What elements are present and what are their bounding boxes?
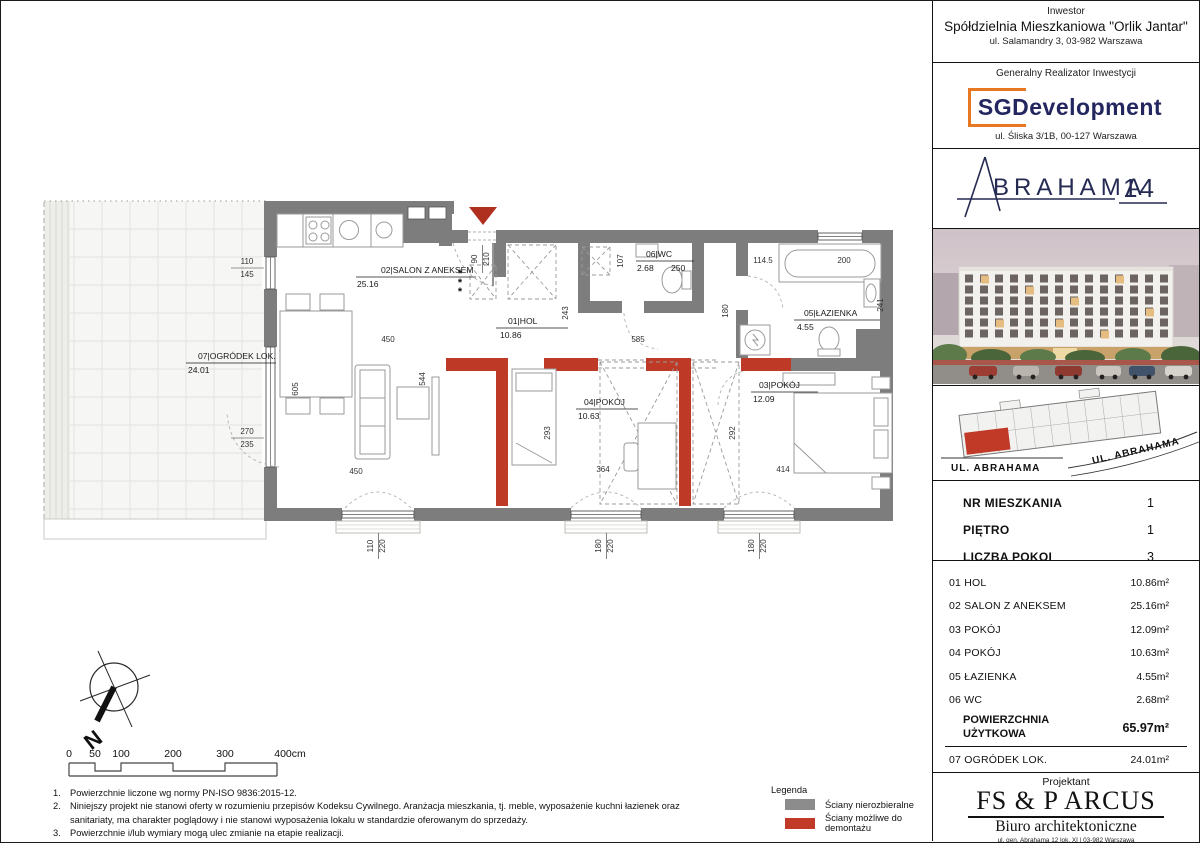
svg-text:110: 110 (366, 539, 375, 552)
label-hol: 01|HOL (508, 316, 538, 326)
svg-text:0: 0 (66, 748, 72, 760)
svg-text:25.16: 25.16 (357, 279, 379, 289)
siteplan-section: UL. ABRAHAMA UL. ABRAHAMA (933, 386, 1199, 481)
investor-section: Inwestor Spółdzielnia Mieszkaniowa "Orli… (933, 1, 1199, 63)
svg-text:24.01: 24.01 (188, 365, 210, 375)
svg-text:364: 364 (596, 465, 610, 474)
svg-text:235: 235 (240, 440, 254, 449)
developer-section: Generalny Realizator Inwestycji SGDevelo… (933, 63, 1199, 149)
investor-address: ul. Salamandry 3, 03-982 Warszawa (933, 36, 1199, 47)
label-salon: 02|SALON Z ANEKSEM (381, 265, 474, 275)
apartment-number-row: NR MIESZKANIA 1 (933, 489, 1199, 516)
svg-text:*: * (458, 286, 463, 298)
svg-text:180: 180 (594, 539, 603, 553)
table-row: 03 POKÓJ12.09m² (933, 618, 1199, 642)
svg-text:450: 450 (349, 467, 363, 476)
svg-text:110: 110 (241, 257, 254, 266)
svg-text:450: 450 (381, 335, 395, 344)
svg-text:50: 50 (89, 748, 101, 760)
room-areas-section: 01 HOL10.86m² 02 SALON Z ANEKSEM25.16m² … (933, 561, 1199, 773)
legend-item-solid-walls: Ściany nierozbieralne (785, 799, 931, 810)
investor-label: Inwestor (933, 1, 1199, 17)
svg-text:585: 585 (631, 335, 645, 344)
red-wall-swatch (785, 818, 815, 829)
svg-text:605: 605 (291, 382, 300, 396)
svg-text:200: 200 (837, 256, 851, 265)
investor-name: Spółdzielnia Mieszkaniowa "Orlik Jantar" (933, 19, 1199, 34)
svg-text:414: 414 (776, 465, 790, 474)
svg-text:107: 107 (616, 254, 625, 268)
svg-text:220: 220 (378, 539, 387, 553)
total-area-row: POWIERZCHNIAUŻYTKOWA 65.97m² (933, 712, 1199, 746)
table-row: 05 ŁAZIENKA4.55m² (933, 665, 1199, 689)
table-divider (945, 746, 1187, 747)
svg-text:4.55: 4.55 (797, 322, 814, 332)
svg-text:180: 180 (721, 304, 730, 318)
gray-wall-swatch (785, 799, 815, 810)
building-photo-section (933, 229, 1199, 386)
svg-text:544: 544 (418, 372, 427, 386)
building-render (933, 229, 1199, 384)
footnotes: 1.Powierzchnie liczone wg normy PN-ISO 9… (53, 787, 725, 843)
svg-text:210: 210 (482, 252, 491, 266)
apartment-info-section: NR MIESZKANIA 1 PIĘTRO 1 LICZBA POKOI 3 (933, 481, 1199, 561)
sgdevelopment-logo: SGDevelopment (968, 88, 1164, 127)
table-row: 02 SALON Z ANEKSEM25.16m² (933, 595, 1199, 619)
table-row: 04 POKÓJ10.63m² (933, 642, 1199, 666)
floor-row: PIĘTRO 1 (933, 516, 1199, 543)
svg-text:400cm: 400cm (274, 748, 306, 760)
label-bath: 05|ŁAZIENKA (804, 308, 858, 318)
svg-text:200: 200 (164, 748, 182, 760)
svg-text:12.09: 12.09 (753, 394, 775, 404)
label-p4: 04|POKÓJ (584, 397, 625, 407)
developer-label: Generalny Realizator Inwestycji (933, 63, 1199, 79)
street-label-left: UL. ABRAHAMA (951, 463, 1040, 474)
label-p3: 03|POKÓJ (759, 380, 800, 390)
scale-bar: 0 50 100 200 300 400cm (59, 746, 329, 782)
title-block-sidebar: Inwestor Spółdzielnia Mieszkaniowa "Orli… (932, 1, 1199, 841)
svg-text:2.68: 2.68 (637, 263, 654, 273)
plan-sheet: * * * 02|SALON Z ANEKSEM 25.16 01|HOL 10… (0, 0, 1200, 843)
svg-text:293: 293 (543, 426, 552, 440)
svg-text:270: 270 (240, 427, 254, 436)
legend: Legenda Ściany nierozbieralne Ściany moż… (771, 785, 931, 833)
legend-item-demountable-walls: Ściany możliwe do demontażu (785, 813, 931, 833)
developer-address: ul. Śliska 3/1B, 00-127 Warszawa (933, 131, 1199, 142)
svg-text:10.86: 10.86 (500, 330, 522, 340)
legend-title: Legenda (771, 785, 931, 795)
abrahama14-logo: BRAHAMA 14 (933, 149, 1199, 227)
svg-text:180: 180 (747, 539, 756, 553)
footnote: 1.Powierzchnie liczone wg normy PN-ISO 9… (53, 787, 725, 800)
designer-section: Projektant FS & P ARCUS Biuro architekto… (933, 773, 1199, 842)
designer-subtitle: Biuro architektoniczne (933, 818, 1199, 836)
svg-text:220: 220 (759, 539, 768, 553)
designer-name: FS & P ARCUS (933, 786, 1199, 816)
garden-row: 07 OGRÓDEK LOK.24.01m² (933, 749, 1199, 773)
svg-text:300: 300 (216, 748, 234, 760)
svg-text:114.5: 114.5 (753, 256, 773, 265)
svg-text:243: 243 (561, 306, 570, 320)
brand-section: BRAHAMA 14 (933, 149, 1199, 229)
svg-text:292: 292 (728, 426, 737, 440)
label-garden: 07|OGRÓDEK LOK. (198, 351, 276, 361)
floor-plan: * * * 02|SALON Z ANEKSEM 25.16 01|HOL 10… (26, 181, 926, 571)
svg-text:250: 250 (671, 263, 686, 273)
svg-text:100: 100 (112, 748, 130, 760)
svg-text:145: 145 (240, 270, 254, 279)
svg-text:10.63: 10.63 (578, 411, 600, 421)
svg-text:14: 14 (1123, 173, 1156, 203)
footnote: 2.Niniejszy projekt nie stanowi oferty w… (53, 800, 725, 827)
svg-text:220: 220 (606, 539, 615, 553)
label-wc: 06|WC (646, 249, 672, 259)
entrance-marker (469, 207, 497, 225)
table-row: 06 WC2.68m² (933, 689, 1199, 713)
footnote: 3.Powierzchnie i/lub wymiary mogą ulec z… (53, 827, 725, 840)
svg-text:90: 90 (470, 254, 479, 263)
terrace (44, 201, 266, 539)
site-plan: UL. ABRAHAMA UL. ABRAHAMA (933, 386, 1199, 479)
designer-address: ul. gen. Abrahama 12 lok. XI | 03-982 Wa… (933, 837, 1199, 843)
svg-text:241: 241 (876, 298, 885, 312)
table-row: 01 HOL10.86m² (933, 571, 1199, 595)
